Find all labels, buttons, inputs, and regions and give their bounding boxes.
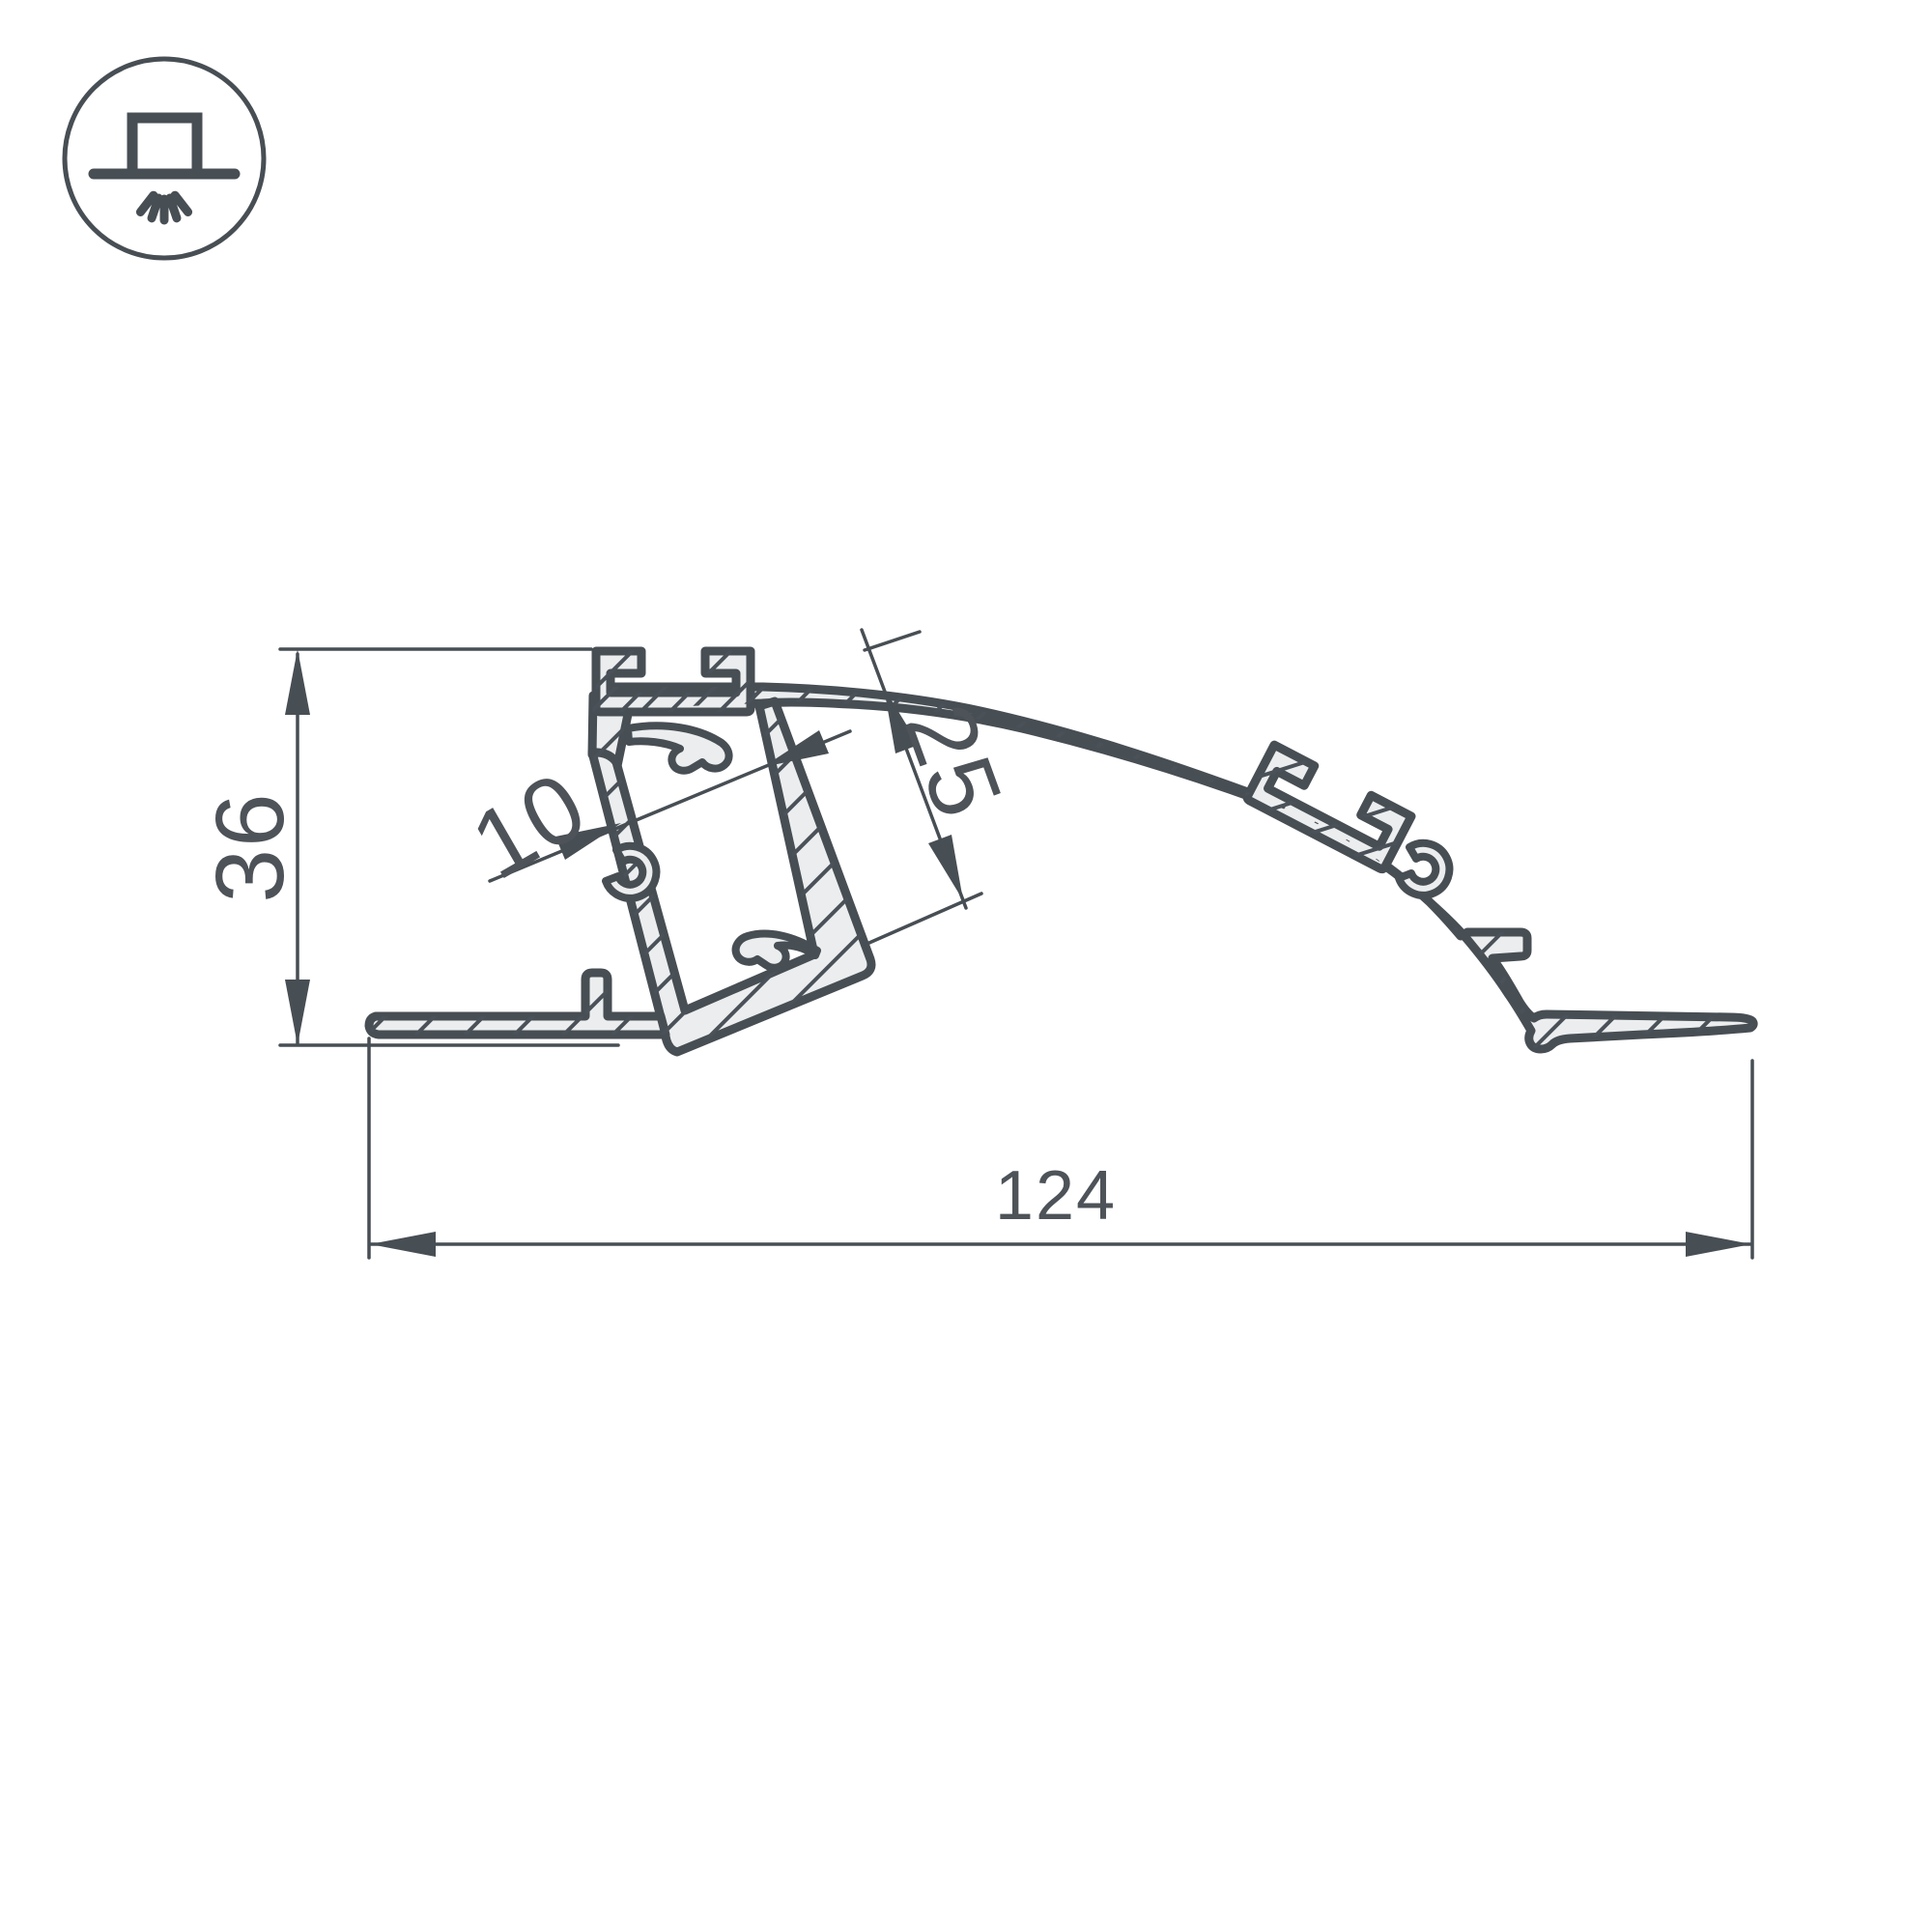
grip-hook-on-curve bbox=[1399, 843, 1449, 895]
icon-circle bbox=[65, 59, 264, 258]
arrowhead-left bbox=[370, 1232, 436, 1257]
profile-drawing-svg: 36 10 25 124 bbox=[0, 0, 1932, 1932]
dim-label-124: 124 bbox=[995, 1157, 1117, 1235]
dim-label-10: 10 bbox=[454, 751, 605, 900]
icon-light-rays bbox=[140, 195, 187, 220]
arrowhead-right bbox=[1686, 1232, 1751, 1257]
dim-channel-depth: 25 bbox=[862, 630, 1023, 946]
strip-hook-top bbox=[628, 725, 729, 770]
surface-light-icon bbox=[65, 59, 264, 258]
ext-line-top bbox=[865, 632, 920, 650]
technical-drawing-page: 36 10 25 124 bbox=[0, 0, 1932, 1932]
arrowhead-down bbox=[285, 980, 310, 1045]
dim-label-36: 36 bbox=[196, 791, 304, 902]
arrowhead-down bbox=[928, 835, 963, 900]
arrowhead-up bbox=[285, 649, 310, 715]
ext-line-bottom bbox=[863, 894, 981, 946]
dim-overall-width: 124 bbox=[369, 1038, 1752, 1258]
icon-luminaire-square bbox=[132, 118, 197, 172]
